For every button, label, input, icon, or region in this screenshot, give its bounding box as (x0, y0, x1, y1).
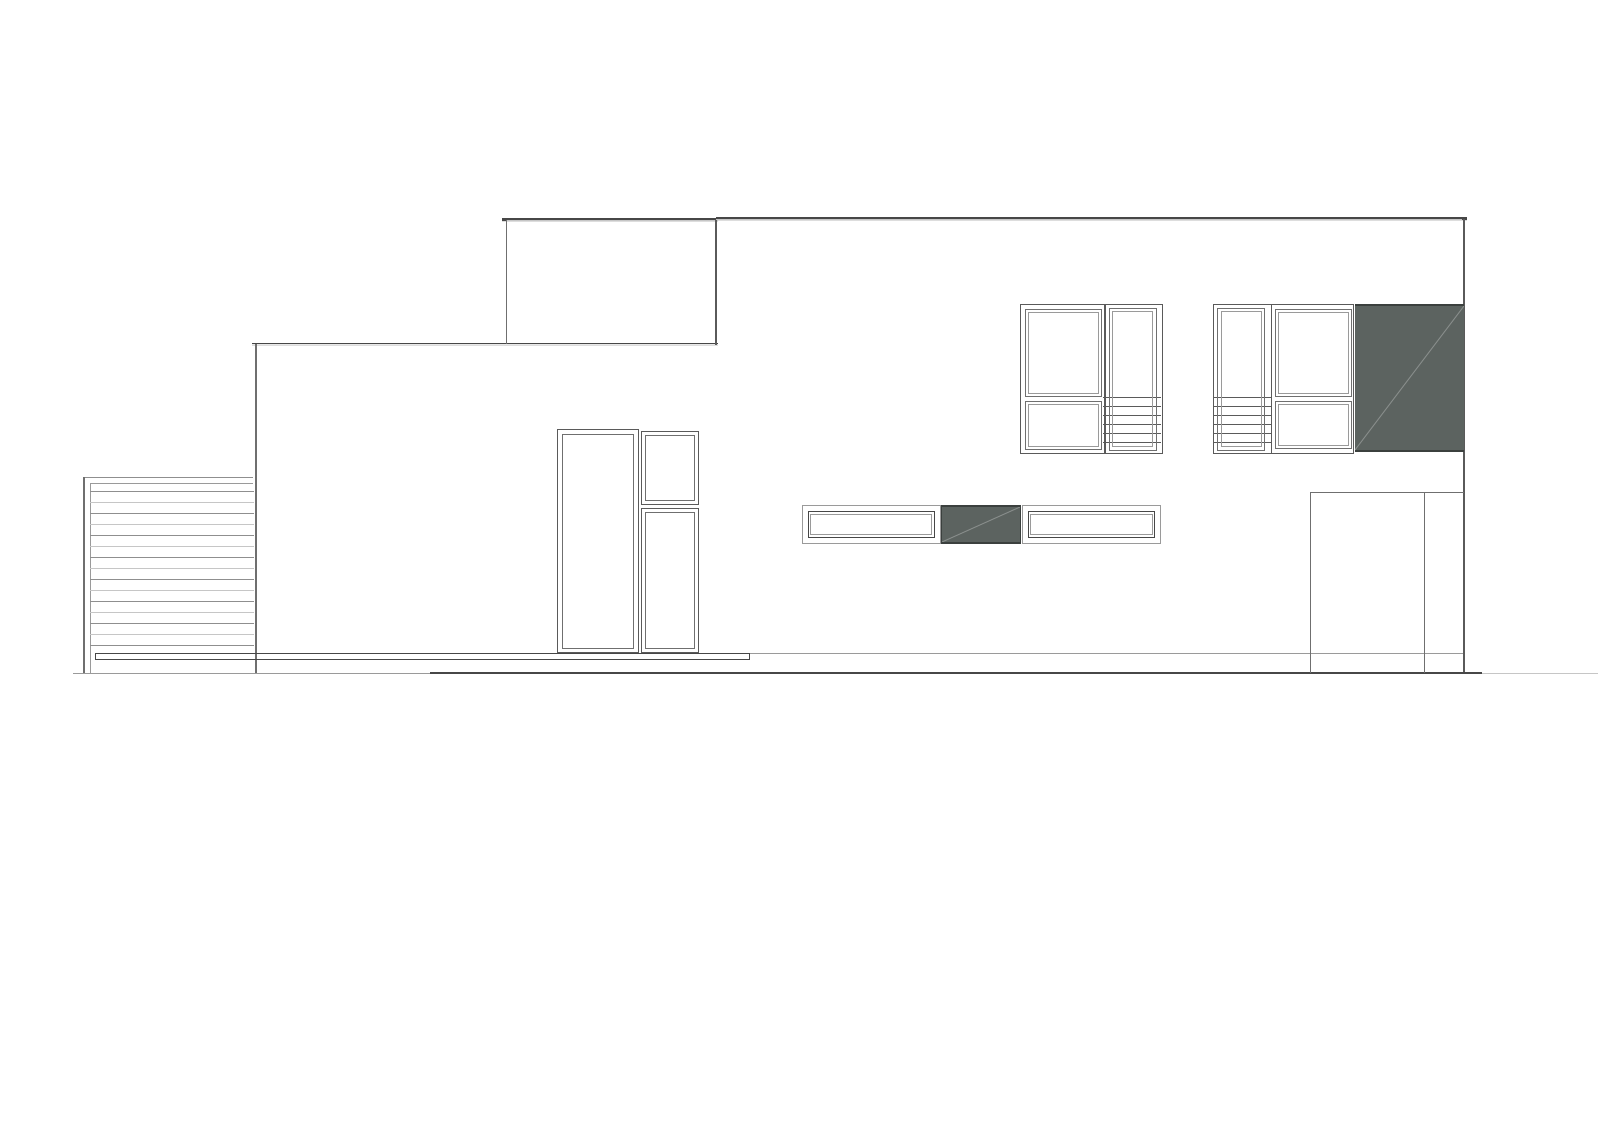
unit-left-pane-upper (1025, 309, 1102, 398)
louver-slat (90, 634, 254, 635)
unit-right-pane-lower-inner (1278, 404, 1349, 446)
lower-roof-line (252, 343, 718, 345)
strip-window-right-sash (1028, 511, 1156, 538)
louver-top-rail (83, 477, 253, 478)
stair-door-right-inner (1221, 311, 1262, 447)
clerestory-roof-line (502, 218, 718, 220)
entry-side-window-lower-inner (645, 512, 695, 649)
upper-window-unit-right (1213, 304, 1354, 454)
louver-slat (90, 513, 254, 514)
stair-door-right (1217, 308, 1265, 451)
unit-right-pane-upper-inner (1278, 312, 1349, 395)
louver-slat (90, 546, 254, 547)
upper-window-unit-left (1020, 304, 1163, 454)
louver-slat (90, 601, 254, 602)
louver-slat (90, 557, 254, 558)
main-roof-line (716, 217, 1467, 219)
louver-slat (90, 524, 254, 525)
stair-door-left (1109, 308, 1157, 451)
unit-right-pane-lower (1275, 401, 1352, 449)
louver-slat (90, 568, 254, 569)
ground-line-right (1482, 673, 1598, 674)
ground-line-left (73, 673, 430, 674)
unit-right-pane-upper (1275, 309, 1352, 398)
entry-door-inner-frame (562, 434, 635, 649)
left-wall (255, 344, 256, 673)
louver-slat (90, 645, 254, 646)
garage-opening (1310, 492, 1464, 674)
stair-door-left-inner (1112, 311, 1153, 447)
strip-window-right (1022, 505, 1162, 544)
clerestory-right-wall (715, 220, 717, 345)
strip-window-right-glass-line (1030, 514, 1153, 536)
louver-top-rail-inner (90, 483, 253, 484)
clerestory-left-wall (506, 220, 507, 345)
garage-lintel-line (1310, 492, 1464, 493)
entry-side-window-lower (641, 508, 699, 653)
entry-door (557, 429, 639, 653)
louver-slat (90, 590, 254, 591)
strip-window-left-glass-line (810, 514, 932, 536)
strip-dark-panel (941, 505, 1021, 544)
unit-left-pane-lower-inner (1028, 404, 1099, 448)
louver-slats (90, 491, 254, 646)
deck-bar (95, 653, 750, 660)
elevation-drawing (0, 0, 1600, 1131)
unit-left-pane-lower (1025, 401, 1102, 451)
strip-window-left-sash (808, 511, 935, 538)
louver-slat (90, 612, 254, 613)
louver-slat (90, 623, 254, 624)
louver-post-outer (83, 477, 85, 673)
garage-left-jamb (1310, 492, 1311, 674)
entry-side-window-upper-inner (645, 435, 695, 502)
facade-dark-panel (1355, 304, 1464, 452)
strip-window-left (802, 505, 941, 544)
unit-right-mullion (1271, 304, 1273, 454)
unit-left-pane-upper-inner (1028, 312, 1099, 395)
louver-slat (90, 535, 254, 536)
garage-door-edge (1424, 492, 1425, 674)
louver-slat (90, 502, 254, 503)
louver-slat (90, 579, 254, 580)
entry-side-window-upper (641, 431, 699, 506)
louver-slat (90, 491, 254, 492)
louver-screen (83, 477, 254, 673)
